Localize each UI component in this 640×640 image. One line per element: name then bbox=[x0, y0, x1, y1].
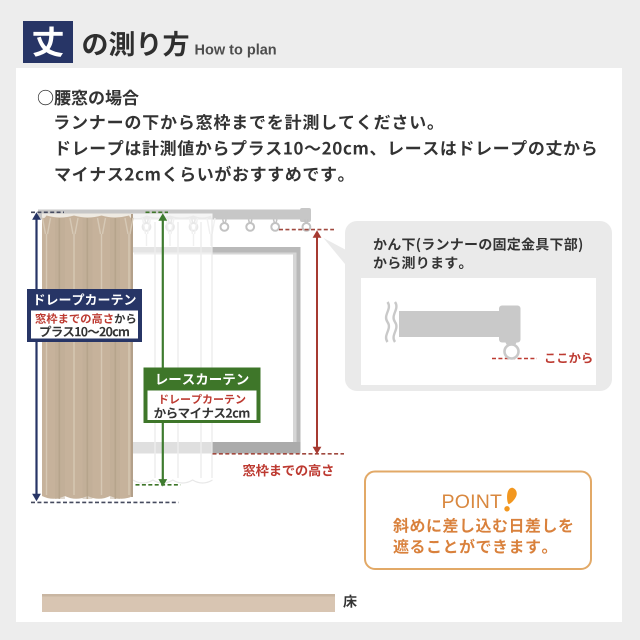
svg-text:How to plan: How to plan bbox=[195, 43, 277, 59]
svg-text:POINT: POINT bbox=[442, 491, 503, 513]
